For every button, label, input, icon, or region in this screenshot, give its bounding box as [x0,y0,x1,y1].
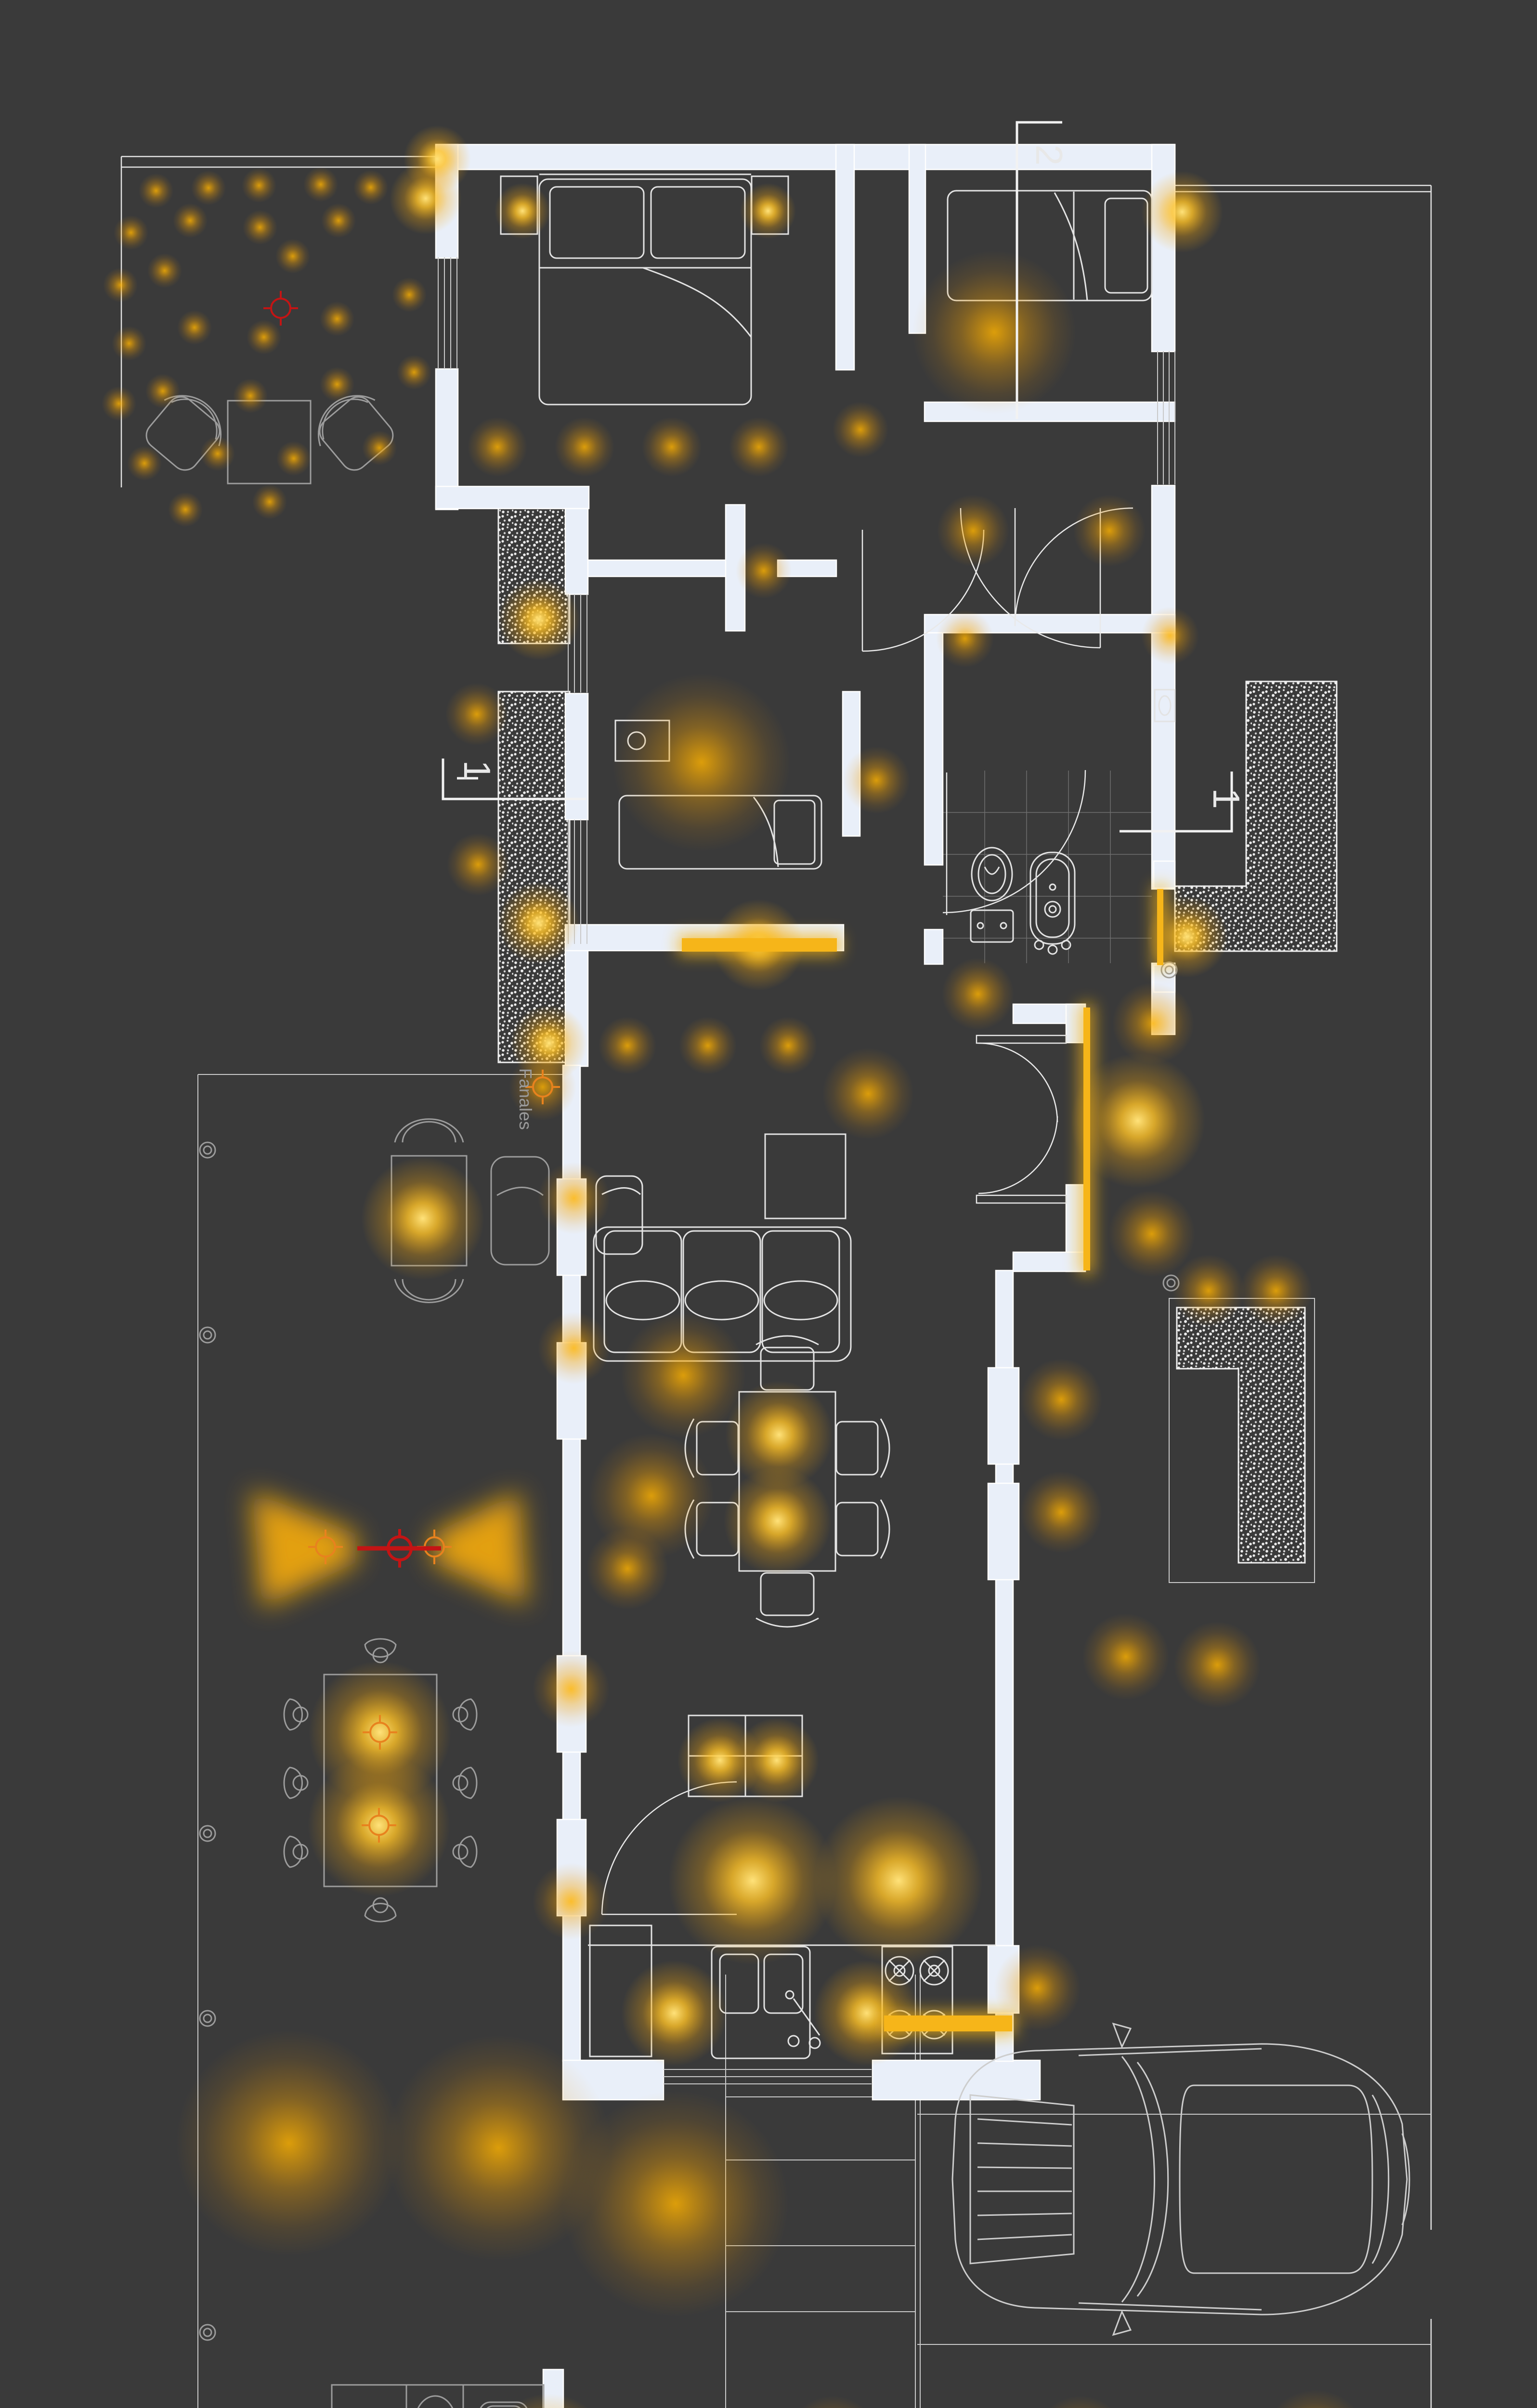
glow-dot [392,277,427,312]
glow-spot [843,746,910,814]
glow-spot [1141,607,1199,665]
glow-dot [320,301,354,336]
led-strip [682,938,837,952]
glow-dot [114,215,148,250]
glow-spot [942,958,1014,1030]
floor-plan-canvas: 2112 Fanales [0,0,1537,2408]
shower-door [943,770,1085,915]
glow-dot [362,431,397,465]
glow-spot [736,543,792,599]
person [453,1767,477,1798]
glow-spot [498,578,580,660]
tv-cabinet [765,1134,846,1218]
glow-spot [390,162,462,235]
glow-spot [468,417,527,477]
section-number: 2 [1028,144,1070,165]
glow-spot [533,1863,610,1940]
entry-double-door [977,1035,1066,1203]
car-mirror-top [1113,2024,1131,2047]
glow-spot [668,1796,837,1965]
glow-spot [538,1312,610,1384]
glow-dot [303,167,338,202]
bidet [1030,852,1075,954]
led-strip [1083,1008,1090,1270]
glow-dot [173,203,208,238]
glow-dot [233,379,268,413]
gravel-l-lower [1177,1308,1305,1563]
glow-dot [139,173,173,208]
glow-spot [1020,1359,1102,1440]
glow-dot [247,320,281,354]
fanales-label: Fanales [516,1068,535,1130]
glow-spot [937,495,1009,567]
person [453,1699,477,1730]
light-cone [433,1492,526,1605]
glow-spot [734,1718,819,1803]
glow-spot [1172,1255,1245,1327]
glow-spot [729,417,789,477]
section-1-right: 1 [1120,772,1248,831]
glow-spot [759,1017,817,1074]
glow-spot [679,1017,737,1074]
glow-spot [1112,982,1194,1064]
glow-spot [1240,1255,1312,1327]
glow-spot [1082,1613,1169,1700]
glow-spot [1174,1622,1261,1708]
led-strip [1157,889,1163,965]
outdoor-kitchen [332,2385,544,2408]
text-labels: Fanales [516,1068,535,1130]
toilet [971,848,1013,942]
column [200,1142,215,1158]
glow-dot [276,441,311,476]
glow-spot [445,683,508,746]
glow-dot [243,210,277,245]
light-cone [251,1491,355,1608]
column [200,1826,215,1841]
glow-dot [127,446,162,481]
glow-spot [1108,1191,1195,1277]
glow-spot [599,1017,656,1074]
glow-spot [498,882,580,964]
glow-spot [740,183,796,239]
glow-spot [724,1467,832,1575]
glow-dot [242,168,276,203]
glow-spot [1263,2390,1368,2408]
column [200,2011,215,2026]
light-fixture-icon [263,291,298,326]
led-strip [884,2015,1012,2031]
glow-spot [176,2030,402,2256]
glow-dot [397,355,431,390]
person [284,1699,308,1730]
glow-dot [252,484,287,519]
glow-dot [320,367,354,402]
glow-dot [168,492,203,527]
glow-dot [353,170,388,205]
glow-spot [533,1650,610,1727]
light-glows [102,125,1368,2408]
glow-dot [112,326,146,361]
glow-spot [833,402,888,458]
glow-dot [147,253,182,288]
person [284,1767,308,1798]
glow-spot [822,1048,914,1139]
glow-spot [612,673,791,851]
car-mirror-bottom [1113,2312,1131,2335]
person [453,1836,477,1867]
glow-dot [102,386,136,421]
person [365,1639,396,1662]
glow-spot [642,417,702,477]
glow-spot [1032,2396,1129,2408]
glow-spot [785,2396,881,2408]
glow-dot [103,268,138,302]
section-number: 1 [456,760,498,781]
glow-dot [200,436,235,471]
section-number: 1 [1205,788,1248,809]
glow-spot [538,1162,610,1234]
glow-spot [1141,171,1223,253]
glow-dot [321,203,356,238]
glow-dot [275,239,310,274]
glow-spot [308,1754,450,1897]
glow-spot [1020,1471,1102,1553]
glow-spot [586,1528,668,1610]
patio-armchair-right [305,382,403,479]
glow-spot [814,1796,983,1965]
column [200,2325,215,2340]
glow-spot [555,417,614,477]
glow-spot [562,2091,789,2317]
glow-spot [621,1960,727,2066]
glow-dot [191,170,226,205]
person [365,1898,396,1922]
column [200,1327,215,1343]
glow-dot [145,374,180,408]
glow-spot [912,250,1076,414]
glow-dot [177,310,212,345]
glow-spot [621,1313,746,1438]
glow-spot [495,183,550,239]
person [284,1836,308,1867]
glow-spot [1073,495,1146,567]
glow-spot [936,610,994,667]
glow-spot [447,833,509,896]
glow-spot [361,1157,484,1280]
